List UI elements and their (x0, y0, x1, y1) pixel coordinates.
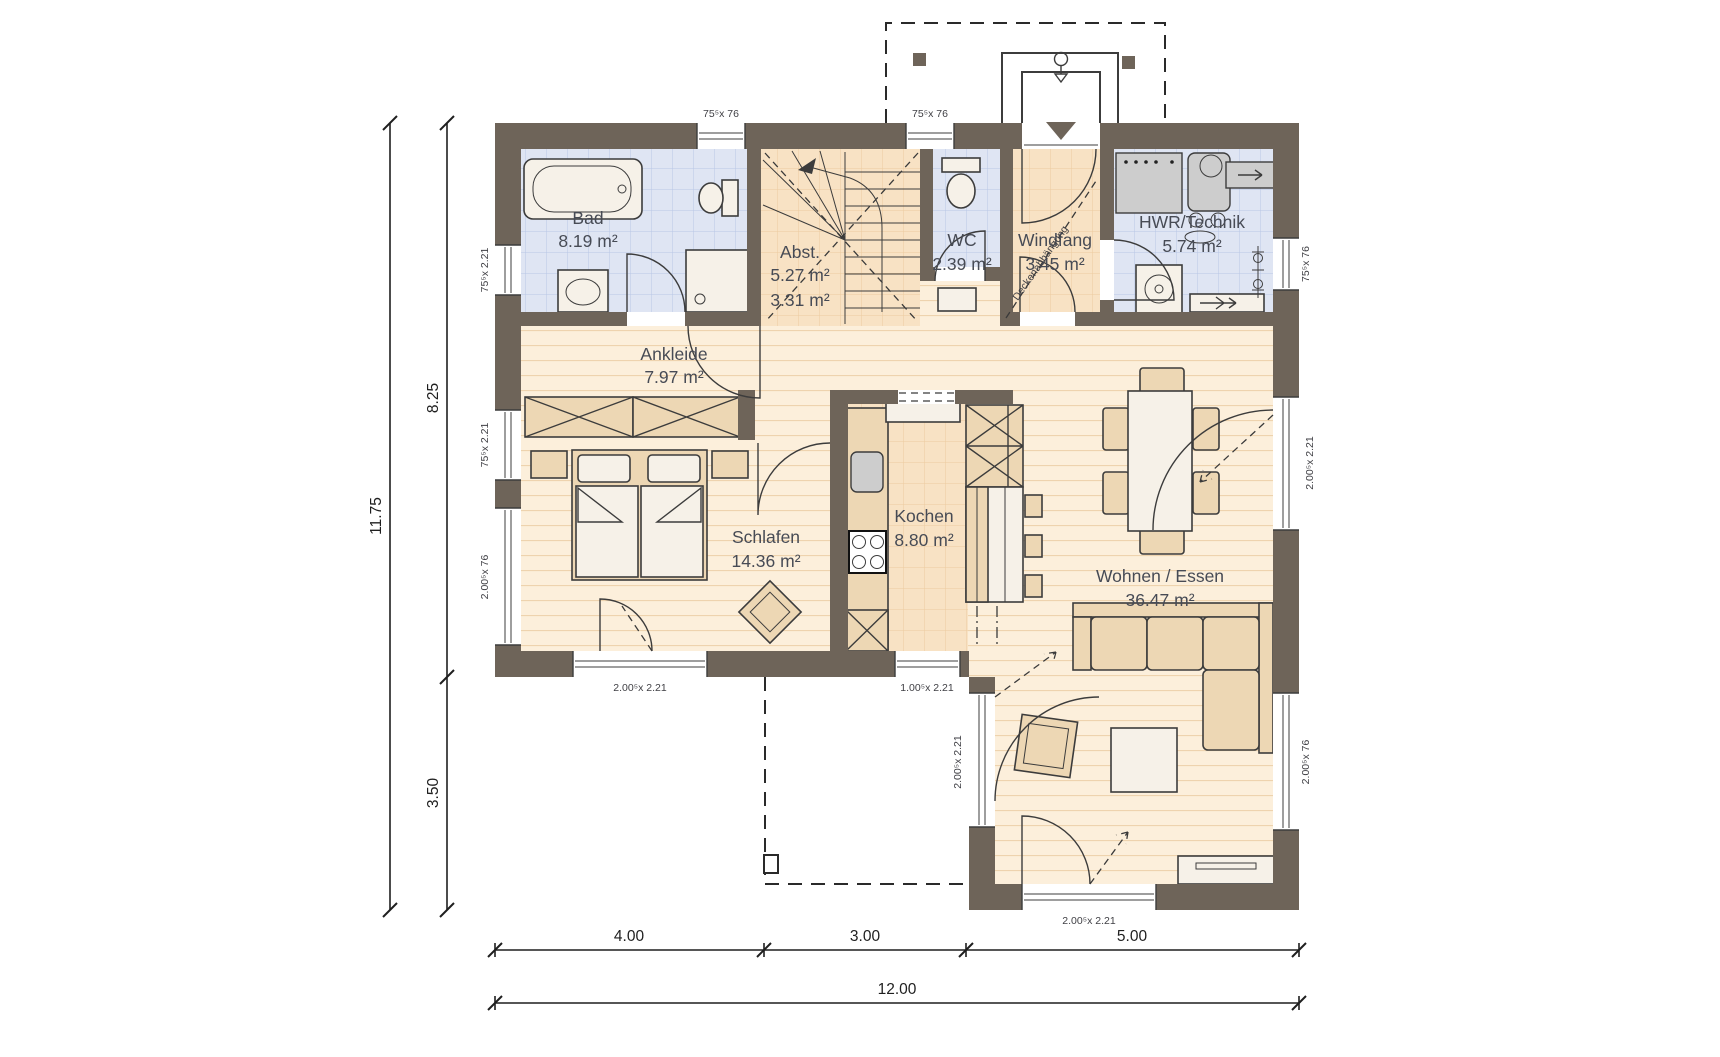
label-window-right-hwr: 75⁵x 76 (1300, 246, 1312, 282)
sofa-cushion-2 (1147, 617, 1203, 670)
window-left-bad (495, 245, 521, 295)
bar-stool (1025, 535, 1042, 557)
wall-schlafen-kueche (830, 390, 848, 651)
entrance-steps (1002, 53, 1118, 124)
dim-bottom-1: 4.00 (614, 928, 645, 945)
label-bad-area: 8.19 m² (558, 231, 617, 251)
canopy-post-right (1122, 56, 1135, 69)
kitchen-pass-counter (886, 402, 960, 422)
wall-under-hwr (1100, 312, 1273, 326)
wc-sink (938, 288, 976, 311)
door-bottom-living (1022, 884, 1156, 910)
label-kochen: Kochen (894, 506, 953, 526)
door-gap-hwr (1100, 240, 1114, 300)
hwr-washing-machine (1136, 265, 1182, 313)
floor-plan-canvas: Bad 8.19 m² Abst. 5.27 m² 3.31 m² WC 2.3… (0, 0, 1720, 1057)
hwr-boiler (1188, 153, 1230, 211)
label-window-right-low: 2.00⁵x 76 (1300, 740, 1312, 785)
sofa-cushion-1 (1091, 617, 1147, 670)
dining-chair-top (1140, 368, 1184, 394)
door-bottom-schlafen (573, 651, 707, 677)
nightstand-right (712, 451, 748, 478)
canopy-post-left (913, 53, 926, 66)
label-window-left-schlafen: 2.00⁵x 76 (479, 555, 491, 600)
wall-wc-left (920, 149, 933, 281)
label-hwr-area: 5.74 m² (1162, 236, 1221, 256)
mattress-right (641, 486, 703, 577)
label-door-lowerleft: 2.00⁵x 2.21 (952, 735, 964, 789)
window-right-hwr (1273, 238, 1299, 290)
label-schlafen: Schlafen (732, 527, 800, 547)
dining-chair-left-2 (1103, 472, 1129, 514)
bar-stool (1025, 495, 1042, 517)
dim-upper-height: 8.25 (425, 383, 442, 413)
label-door-right-living: 2.00⁵x 2.21 (1304, 436, 1316, 490)
window-right-low (1273, 693, 1299, 830)
label-abst-area2: 3.31 m² (770, 290, 829, 310)
dim-bottom-3: 5.00 (1117, 928, 1148, 945)
dining-chair-bottom (1140, 528, 1184, 554)
dim-lower-height: 3.50 (425, 778, 442, 809)
tv-sideboard (1178, 856, 1274, 884)
toilet-tank (722, 180, 738, 216)
bathroom-sink (558, 270, 608, 312)
coffee-table (1111, 728, 1177, 792)
living-armchair (1014, 714, 1077, 777)
label-window-top-bad: 75⁵x 76 (703, 108, 739, 120)
sofa-chaise (1203, 670, 1259, 750)
label-window-left-ankleide: 75⁵x 2.21 (479, 423, 491, 468)
label-schlafen-area: 14.36 m² (731, 551, 800, 571)
dining-chair-right-2 (1193, 472, 1219, 514)
pillow-right (648, 455, 700, 482)
sofa-cushion-3 (1203, 617, 1259, 670)
dining-chair-right-1 (1193, 408, 1219, 450)
label-abst: Abst. (780, 242, 820, 262)
sofa-armrest (1073, 617, 1091, 670)
label-window-bottom-kochen: 1.00⁵x 2.21 (900, 682, 954, 694)
hall-floor (830, 326, 1273, 390)
door-right-living (1273, 397, 1299, 530)
window-left-schlafen (495, 508, 521, 645)
label-door-bottom-schlafen: 2.00⁵x 2.21 (613, 682, 667, 694)
label-wc: WC (947, 230, 976, 250)
dining-chair-left-1 (1103, 408, 1129, 450)
dim-total-height: 11.75 (368, 497, 385, 535)
pillow-left (578, 455, 630, 482)
label-bad: Bad (572, 208, 603, 228)
label-wohnen: Wohnen / Essen (1096, 566, 1224, 586)
shower (686, 250, 750, 312)
window-left-ankleide (495, 410, 521, 480)
label-kochen-area: 8.80 m² (894, 530, 953, 550)
nightstand-left (531, 451, 567, 478)
terrace-outline (764, 677, 969, 884)
dim-bottom-2: 3.00 (850, 928, 881, 945)
sofa-back-right (1259, 603, 1273, 753)
wc-toilet-bowl (947, 174, 975, 208)
wall-top (495, 123, 1299, 149)
pass-through-opening (898, 390, 955, 404)
wall-bad-stairs (747, 149, 761, 312)
label-window-left-bad: 75⁵x 2.21 (479, 248, 491, 293)
label-hwr: HWR/Technik (1139, 212, 1245, 232)
label-ankleide: Ankleide (640, 344, 707, 364)
bar-stool (1025, 575, 1042, 597)
label-wohnen-area: 36.47 m² (1125, 590, 1194, 610)
label-abst-area1: 5.27 m² (770, 265, 829, 285)
mattress-left (576, 486, 638, 577)
window-top-bad (697, 123, 745, 149)
dim-total-width: 12.00 (878, 981, 917, 998)
terrace-marker (764, 855, 778, 873)
label-wc-area: 2.39 m² (932, 254, 991, 274)
floor-plan-page: Bad 8.19 m² Abst. 5.27 m² 3.31 m² WC 2.3… (0, 0, 1720, 1057)
door-gap-windfang (1020, 312, 1075, 326)
window-bottom-kochen (895, 651, 960, 677)
label-ankleide-area: 7.97 m² (644, 367, 703, 387)
kitchen-sink (851, 452, 883, 492)
door-gap-bad (627, 312, 685, 326)
door-lowerleft-living (969, 693, 995, 827)
label-window-top-wc: 75⁵x 76 (912, 108, 948, 120)
label-door-bottom-living: 2.00⁵x 2.21 (1062, 915, 1116, 927)
dining-table (1128, 391, 1192, 531)
toilet-bowl (699, 183, 723, 213)
window-top-wc (906, 123, 954, 149)
wc-toilet-tank (942, 158, 980, 172)
wall-wc-right (1000, 149, 1013, 326)
